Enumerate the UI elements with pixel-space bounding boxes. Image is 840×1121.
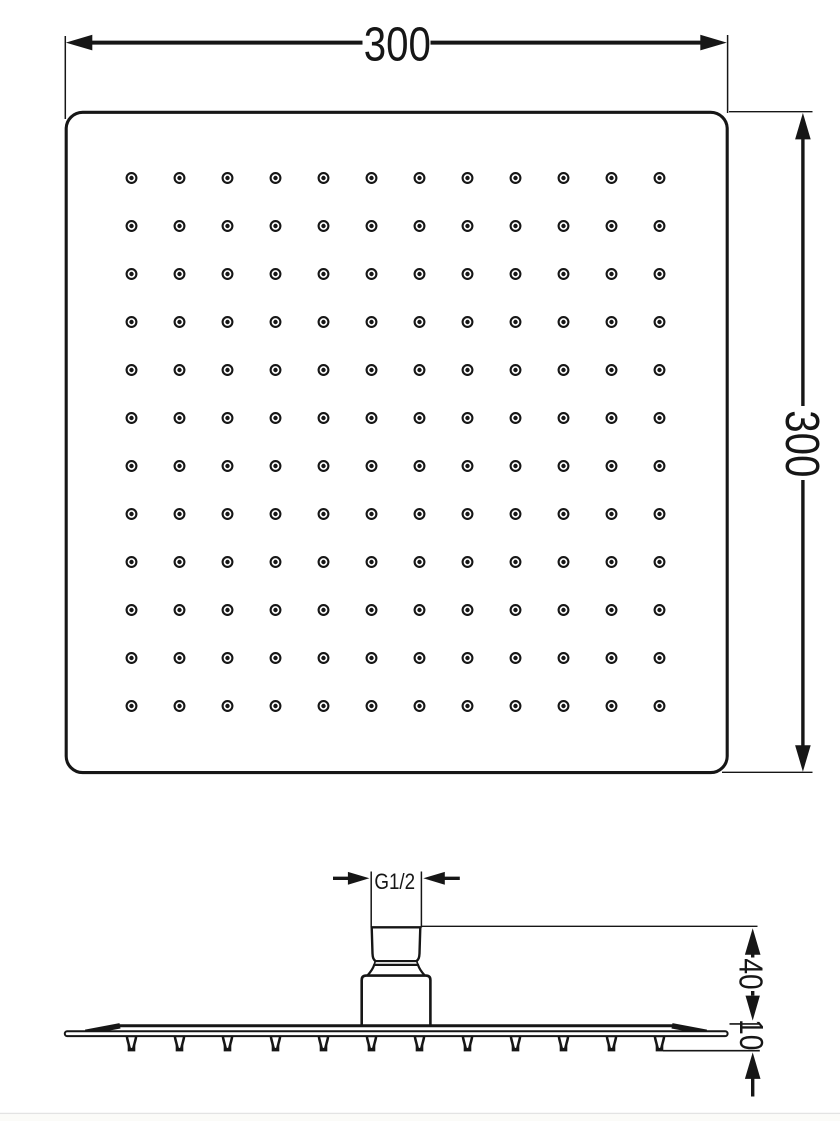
svg-text:G1/2: G1/2 xyxy=(374,870,415,895)
svg-text:300: 300 xyxy=(775,410,828,477)
svg-text:10: 10 xyxy=(732,1019,770,1050)
svg-text:40: 40 xyxy=(732,958,770,989)
svg-text:300: 300 xyxy=(364,18,431,71)
